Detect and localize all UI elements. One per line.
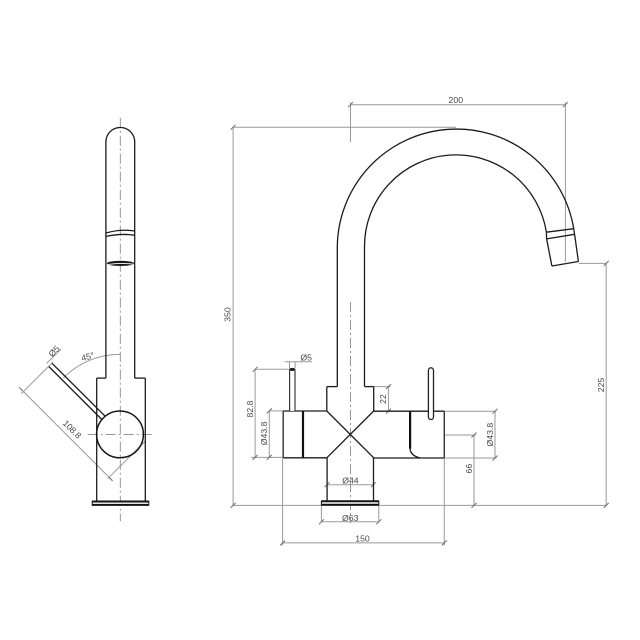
svg-text:225: 225 [596,378,606,393]
svg-text:66: 66 [464,464,474,474]
svg-text:150: 150 [355,533,370,543]
svg-text:Ø43.8: Ø43.8 [485,423,495,447]
svg-text:22: 22 [378,394,388,404]
svg-text:82.8: 82.8 [245,400,255,417]
svg-text:Ø43.8: Ø43.8 [259,421,269,445]
svg-text:350: 350 [223,307,233,322]
svg-text:200: 200 [449,95,464,105]
svg-text:Ø5: Ø5 [300,352,312,362]
